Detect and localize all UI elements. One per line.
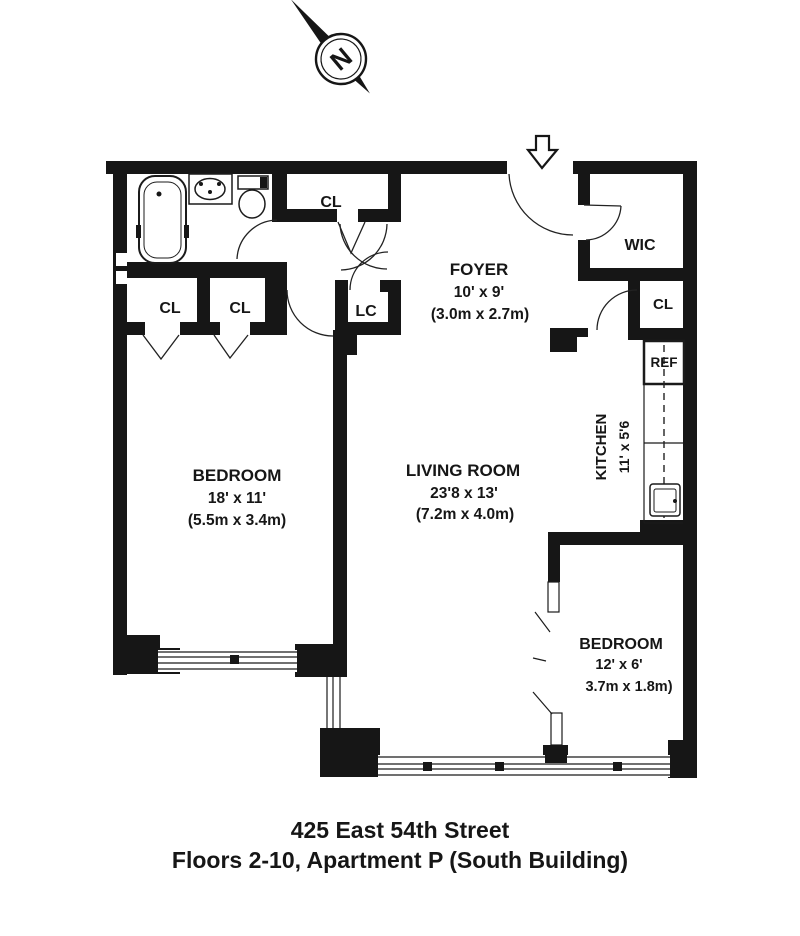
refrigerator-label: REF [651, 355, 678, 370]
living-room-label: LIVING ROOM [406, 461, 520, 480]
wic-door-leaf [584, 205, 621, 206]
entry-arrow-icon [528, 136, 557, 168]
foyer-label: FOYER [450, 260, 509, 279]
caption-floors: Floors 2-10, Apartment P (South Building… [172, 847, 628, 873]
wic-label: WIC [624, 237, 656, 254]
floor-plan-drawing: N [0, 0, 800, 936]
linen-closet-label: LC [355, 303, 377, 320]
window-mullion [613, 762, 622, 771]
window-mullion [230, 655, 239, 664]
window-mullion [495, 762, 504, 771]
foyer-dim-ft: 10' x 9' [454, 284, 504, 301]
hall-door-arc [340, 224, 387, 269]
toilet-icon [238, 176, 268, 218]
caption-address: 425 East 54th Street [291, 817, 510, 843]
bifold-door [143, 335, 179, 359]
bedroom-closet-right-label: CL [229, 300, 251, 317]
bedroom-door-arc [287, 290, 333, 336]
bedroom-left-dim-ft: 18' x 11' [208, 490, 266, 507]
bedroom-left-label: BEDROOM [193, 466, 282, 485]
kitchen-sink-icon [650, 484, 680, 516]
compass-icon: N [272, 0, 389, 110]
bathroom-sink-icon [189, 174, 232, 204]
window-mullion [423, 762, 432, 771]
bedroom-right-label: BEDROOM [579, 636, 663, 653]
bedroom-closet-left-label: CL [159, 300, 181, 317]
bathroom-door-arc [237, 220, 277, 259]
living-room-dim-ft: 23'8 x 13' [430, 485, 498, 502]
kitchen-label: KITCHEN [593, 414, 610, 481]
entry-door-arc [509, 174, 573, 235]
living-room-dim-m: (7.2m x 4.0m) [416, 506, 514, 523]
kitchen-dim-ft: 11' x 5'6 [616, 420, 632, 473]
wic-closet-label: CL [653, 296, 673, 313]
wic-door-arc [586, 206, 621, 240]
bifold-door [214, 335, 248, 358]
bedroom-right-dim-ft: 12' x 6' [595, 657, 642, 673]
bedroom-right-dim-m: 3.7m x 1.8m) [585, 679, 672, 695]
hall-closet-label: CL [320, 194, 342, 211]
foyer-dim-m: (3.0m x 2.7m) [431, 306, 529, 323]
bathtub-icon [136, 176, 189, 263]
bedroom-left-dim-m: (5.5m x 3.4m) [188, 512, 286, 529]
floor-plan-page: N [0, 0, 800, 936]
